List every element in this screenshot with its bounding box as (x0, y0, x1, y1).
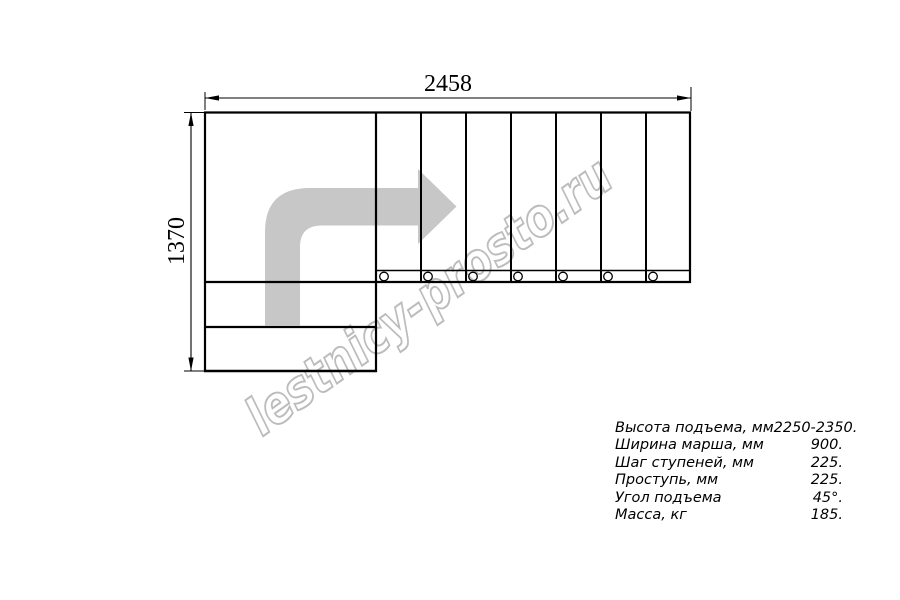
bolt-hole (559, 272, 568, 281)
arrowhead-right-icon (677, 95, 691, 100)
spec-label: Масса, кг (615, 507, 687, 524)
bolt-hole (380, 272, 389, 281)
spec-value: 225. (811, 455, 843, 472)
bolt-hole (514, 272, 523, 281)
drawing-canvas: lestnicy-prosto.ru (0, 0, 900, 600)
spec-value: 185. (811, 507, 843, 524)
spec-value: 2250-2350. (774, 420, 858, 437)
spec-row: Масса, кг 185. (615, 507, 843, 524)
spec-row: Высота подъема, мм 2250-2350. (615, 420, 843, 437)
spec-label: Высота подъема, мм (615, 420, 774, 437)
spec-label: Проступь, мм (615, 472, 718, 489)
arrowhead-down-icon (188, 358, 193, 372)
spec-row: Шаг ступеней, мм 225. (615, 455, 843, 472)
spec-value: 225. (811, 472, 843, 489)
spec-label: Ширина марша, мм (615, 437, 764, 454)
dimension-width: 2458 (205, 71, 691, 111)
dimension-height: 1370 (164, 113, 204, 372)
arrowhead-up-icon (188, 113, 193, 127)
bolt-hole (649, 272, 658, 281)
height-dimension-label: 1370 (164, 217, 190, 265)
spec-value: 45°. (813, 490, 843, 507)
spec-value: 900. (811, 437, 843, 454)
spec-row: Ширина марша, мм 900. (615, 437, 843, 454)
spec-table: Высота подъема, мм 2250-2350. Ширина мар… (615, 420, 843, 524)
bolt-hole (604, 272, 613, 281)
width-dimension-label: 2458 (424, 71, 472, 97)
spec-row: Угол подъема 45°. (615, 490, 843, 507)
spec-label: Шаг ступеней, мм (615, 455, 754, 472)
arrowhead-left-icon (205, 95, 219, 100)
spec-row: Проступь, мм 225. (615, 472, 843, 489)
spec-label: Угол подъема (615, 490, 722, 507)
